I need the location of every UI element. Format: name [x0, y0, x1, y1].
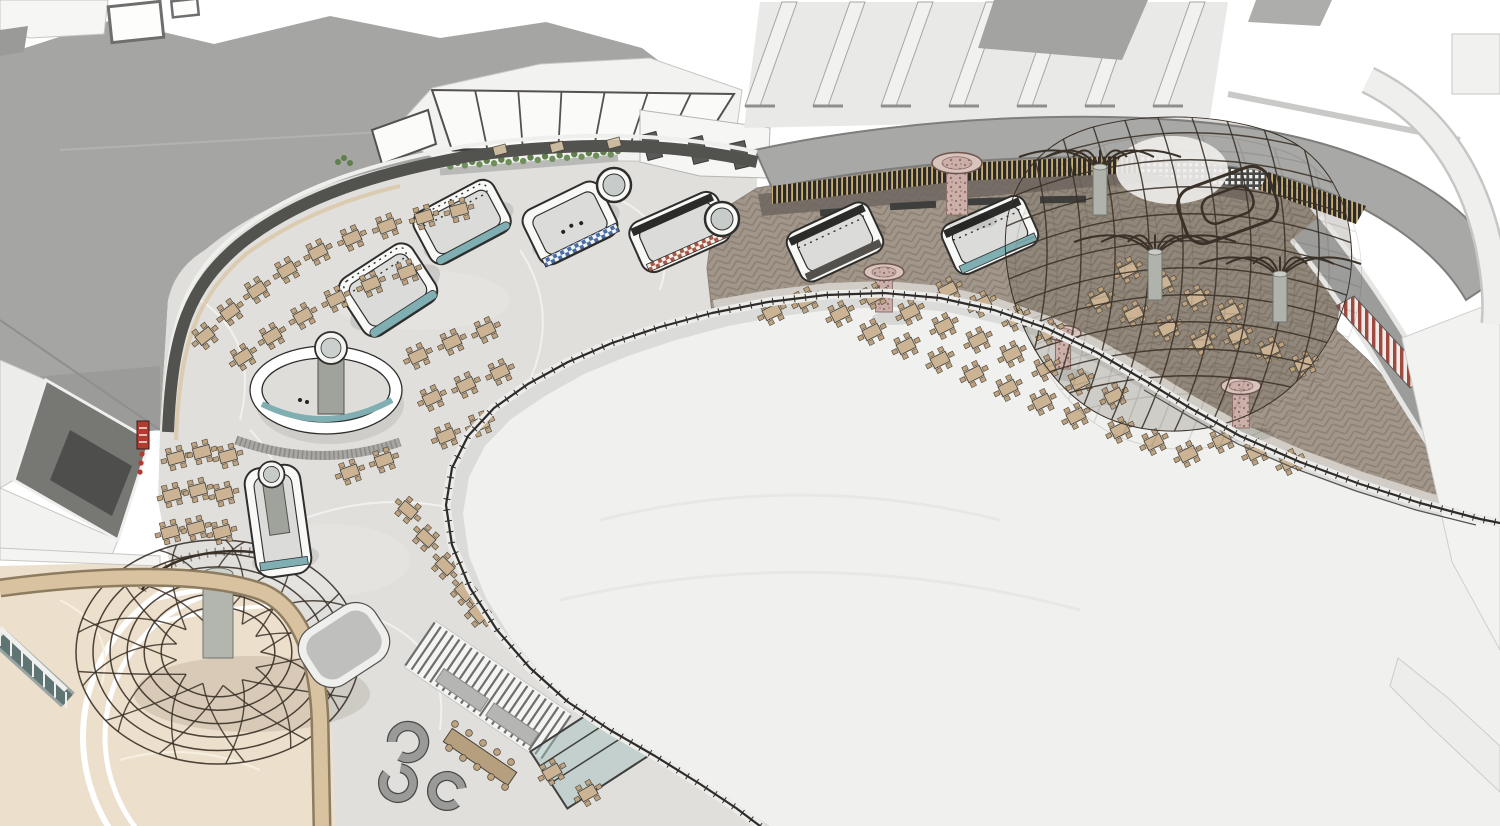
- chair: [161, 485, 167, 491]
- chair: [209, 494, 215, 500]
- hedge-plant: [549, 156, 555, 162]
- column-cap-center: [872, 267, 896, 277]
- chair: [229, 498, 235, 504]
- render-canvas: [0, 0, 1500, 826]
- chair: [159, 522, 165, 528]
- chair: [191, 442, 197, 448]
- chair: [207, 484, 213, 490]
- chair: [211, 446, 217, 452]
- round-canopy-glass: [711, 208, 733, 230]
- chair: [170, 465, 176, 471]
- chair: [216, 539, 222, 545]
- column-cap-glass: [321, 338, 341, 358]
- chair: [170, 519, 176, 525]
- tree-trunk-top: [1148, 249, 1162, 255]
- roof-patch: [1248, 0, 1332, 26]
- hedge-plant: [564, 155, 570, 161]
- chair: [172, 482, 178, 488]
- hedge-plant: [535, 157, 541, 163]
- chair: [207, 532, 213, 538]
- roof-skylight: [108, 1, 163, 42]
- roof-gray-patch: [0, 26, 28, 56]
- column-cap-center: [1229, 381, 1253, 391]
- chair: [237, 450, 243, 456]
- kiosk-sign-glyph: [305, 400, 309, 404]
- chair: [227, 536, 233, 542]
- hedge-plant: [578, 154, 584, 160]
- chair: [183, 490, 189, 496]
- kiosk-sign-glyph: [298, 398, 302, 402]
- chair: [218, 501, 224, 507]
- chair: [177, 499, 183, 505]
- chair: [453, 217, 459, 223]
- tree-trunk-top: [1093, 164, 1107, 170]
- chair: [192, 497, 198, 503]
- chair: [166, 502, 172, 508]
- chair: [157, 495, 163, 501]
- red-lamp: [137, 469, 142, 474]
- hedge-plant: [527, 154, 533, 160]
- chair: [464, 214, 470, 220]
- chair: [196, 515, 202, 521]
- hedge-plant: [491, 160, 497, 166]
- column-cap-center: [942, 157, 972, 170]
- round-canopy-glass: [603, 174, 625, 196]
- chair: [233, 488, 239, 494]
- hedge-plant: [476, 161, 482, 167]
- chair: [224, 481, 230, 487]
- chair: [231, 526, 237, 532]
- chair: [228, 443, 234, 449]
- chair: [164, 539, 170, 545]
- railing-post: [904, 291, 905, 298]
- chair: [201, 532, 207, 538]
- chair: [444, 210, 450, 216]
- roof-skylight: [171, 0, 199, 17]
- tree-trunk: [1273, 274, 1287, 322]
- chair: [203, 494, 209, 500]
- chair: [198, 477, 204, 483]
- railing-post: [915, 292, 916, 299]
- right-corner-room: [1452, 34, 1500, 94]
- chair: [175, 536, 181, 542]
- hedge-plant: [593, 152, 599, 158]
- chair: [205, 522, 211, 528]
- chair: [459, 197, 465, 203]
- railing-post: [893, 290, 894, 297]
- chair: [181, 462, 187, 468]
- chair: [217, 446, 223, 452]
- chair: [196, 459, 202, 465]
- railing-post: [937, 294, 938, 301]
- chair: [233, 460, 239, 466]
- chair: [187, 480, 193, 486]
- chair: [207, 456, 213, 462]
- chair: [222, 519, 228, 525]
- chair: [211, 522, 217, 528]
- hedge-plant: [608, 151, 614, 157]
- architectural-render: [0, 0, 1500, 826]
- chair: [202, 439, 208, 445]
- chair: [213, 456, 219, 462]
- chair: [176, 445, 182, 451]
- chair: [222, 463, 228, 469]
- tree-trunk: [1148, 252, 1162, 300]
- red-lamp: [138, 460, 143, 465]
- chair: [155, 532, 161, 538]
- chair: [190, 535, 196, 541]
- chair: [185, 518, 191, 524]
- chair: [161, 458, 167, 464]
- hedge-plant: [505, 159, 511, 165]
- hedge-plant: [520, 158, 526, 164]
- chair: [213, 484, 219, 490]
- tree-trunk-top: [1273, 271, 1287, 277]
- railing-post: [926, 293, 927, 300]
- chair: [165, 448, 171, 454]
- chair: [468, 204, 474, 210]
- chair: [448, 200, 454, 206]
- chair: [187, 452, 193, 458]
- red-lamp: [139, 451, 144, 456]
- chair: [181, 528, 187, 534]
- hedge-plant: [542, 153, 548, 159]
- tree-trunk: [1093, 167, 1107, 215]
